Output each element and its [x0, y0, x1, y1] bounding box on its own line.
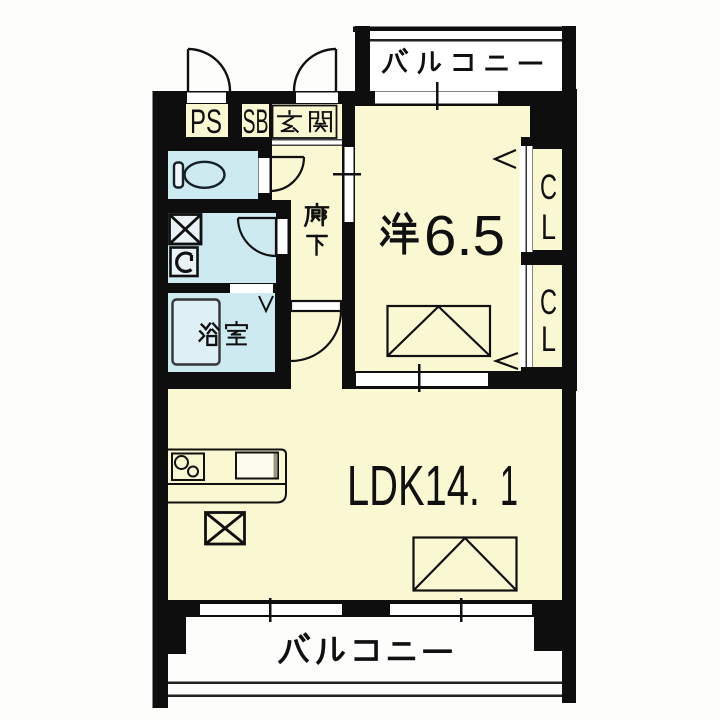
svg-text:L: L — [541, 208, 556, 247]
svg-text:LDK14.: LDK14. — [347, 454, 480, 518]
svg-text:PS: PS — [190, 103, 222, 141]
svg-text:SB: SB — [243, 103, 269, 141]
svg-text:L: L — [541, 320, 556, 359]
svg-text:6.5: 6.5 — [424, 204, 505, 268]
svg-text:C: C — [540, 283, 557, 322]
svg-text:C: C — [540, 168, 557, 207]
svg-text:1: 1 — [500, 454, 518, 518]
